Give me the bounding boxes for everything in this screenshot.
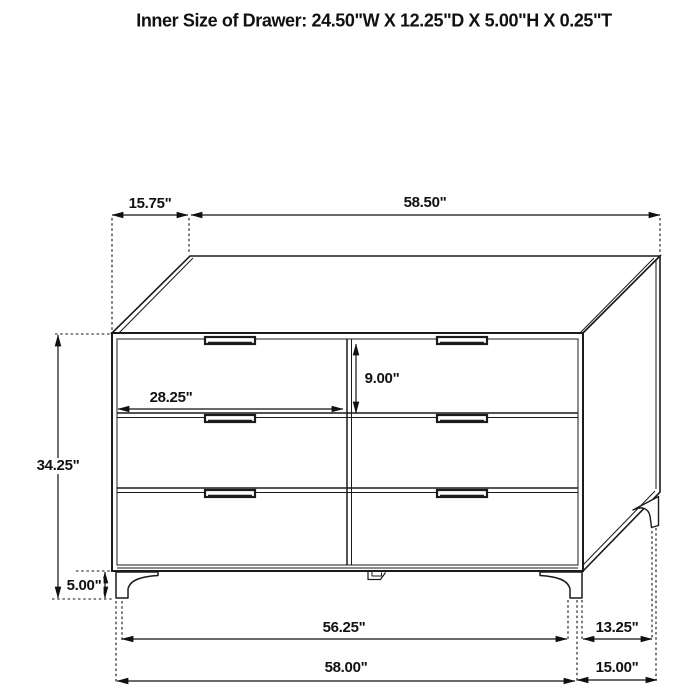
- dim-label-front-legs-span: 56.25": [321, 620, 368, 636]
- dim-label-top-width: 58.50": [402, 195, 449, 211]
- cabinet-front-face: [112, 333, 583, 571]
- dim-label-leg-height: 5.00": [65, 578, 104, 594]
- dim-label-overall-depth: 15.00": [594, 660, 641, 676]
- dim-label-drawer-width: 28.25": [148, 390, 195, 406]
- dresser-dimension-diagram: Inner Size of Drawer: 24.50"W X 12.25"D …: [0, 0, 700, 700]
- dresser-line-drawing: [0, 0, 700, 700]
- dim-label-side-legs-span: 13.25": [594, 620, 641, 636]
- dim-label-top-depth: 15.75": [127, 196, 174, 212]
- page-title: Inner Size of Drawer: 24.50"W X 12.25"D …: [136, 11, 612, 32]
- dim-label-overall-height: 34.25": [35, 458, 82, 474]
- dim-label-overall-width: 58.00": [323, 660, 370, 676]
- cabinet-top-face: [112, 256, 660, 335]
- dim-label-drawer-height: 9.00": [363, 371, 402, 387]
